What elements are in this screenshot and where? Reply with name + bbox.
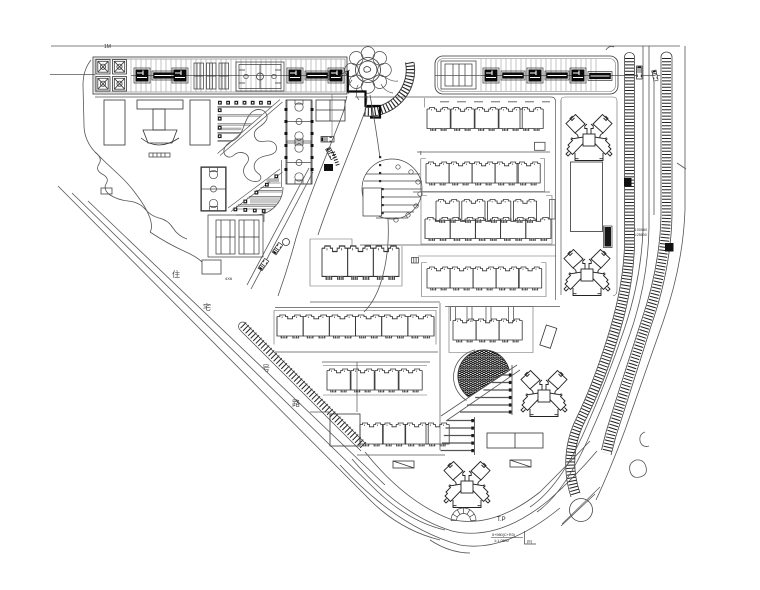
svg-text:(E): (E) xyxy=(527,539,533,544)
svg-text:4X6: 4X6 xyxy=(225,276,233,281)
svg-text:住: 住 xyxy=(172,269,180,279)
svg-text:5+980(C+R3): 5+980(C+R3) xyxy=(492,533,516,537)
svg-text:1M: 1M xyxy=(104,44,111,50)
svg-text:宅: 宅 xyxy=(203,302,211,312)
svg-text:路: 路 xyxy=(292,398,300,408)
svg-text:号: 号 xyxy=(262,364,270,373)
svg-text:4.00X60: 4.00X60 xyxy=(634,228,647,232)
svg-text:T.P: T.P xyxy=(497,517,506,523)
svg-text:1:1.0500: 1:1.0500 xyxy=(494,539,509,543)
svg-text:1:25000: 1:25000 xyxy=(634,233,647,237)
